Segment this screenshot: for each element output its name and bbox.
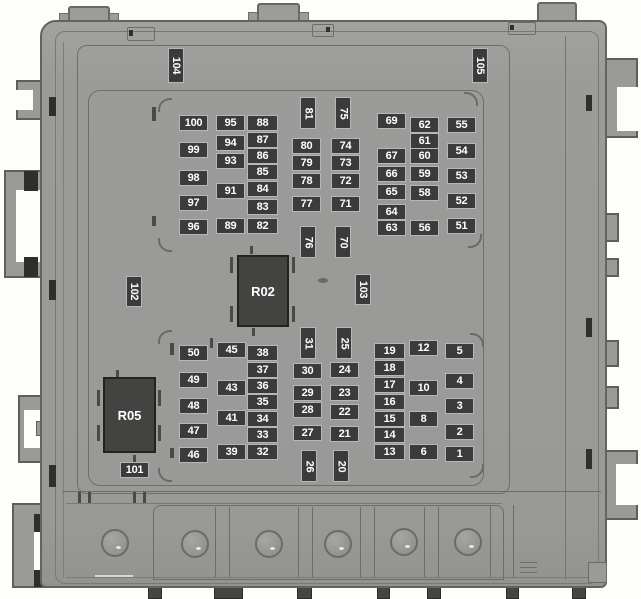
- fuse-label-38: 38: [247, 345, 278, 361]
- fuse-label-84: 84: [247, 181, 278, 197]
- relay-R05: R05: [103, 377, 156, 453]
- fuse-label-58: 58: [410, 185, 439, 201]
- relay-pin-tick: [133, 455, 136, 462]
- fuse-label-89: 89: [216, 218, 245, 234]
- fuse-label-31: 31: [300, 327, 316, 359]
- edge-tick: [586, 318, 592, 337]
- center-mark: [318, 278, 328, 283]
- relay-pin-tick: [116, 370, 119, 377]
- fuse-label-39: 39: [217, 444, 246, 460]
- edge-tick: [49, 97, 56, 116]
- fuse-label-103: 103: [355, 274, 371, 305]
- fuse-label-8: 8: [409, 411, 438, 427]
- fuse-label-25: 25: [336, 327, 352, 359]
- strip-second-line: [66, 503, 502, 504]
- fuse-label-105: 105: [472, 48, 488, 83]
- relay-pin-tick: [230, 257, 233, 273]
- fuse-label-86: 86: [247, 148, 278, 164]
- connector-hole: [454, 528, 482, 556]
- fuse-label-83: 83: [247, 199, 278, 215]
- connector-channel: [215, 507, 230, 577]
- ladder-mark: [520, 567, 537, 568]
- fuse-label-72: 72: [331, 173, 360, 189]
- fuse-label-5: 5: [445, 343, 474, 359]
- fuse-label-19: 19: [374, 343, 405, 359]
- fuse-label-55: 55: [447, 117, 476, 133]
- fuse-label-45: 45: [217, 342, 246, 358]
- fuse-label-95: 95: [216, 115, 245, 131]
- relay-pin-tick: [158, 425, 161, 441]
- fuse-label-10: 10: [409, 380, 438, 396]
- fuse-label-35: 35: [247, 394, 278, 410]
- fuse-label-71: 71: [331, 196, 360, 212]
- side-tab-right: [605, 258, 619, 277]
- corner-step: [588, 562, 607, 583]
- fuse-label-3: 3: [445, 398, 474, 414]
- connector-hole: [181, 530, 209, 558]
- fuse-label-85: 85: [247, 164, 278, 180]
- edge-tick: [49, 465, 56, 487]
- top-latch-pin: [326, 27, 330, 32]
- fuse-label-6: 6: [409, 444, 438, 460]
- fuse-label-22: 22: [330, 404, 359, 420]
- top-latch-pin: [510, 25, 514, 30]
- scratch-highlight: [95, 575, 133, 577]
- fuse-label-77: 77: [292, 196, 321, 212]
- connector-channel: [424, 507, 439, 577]
- fuse-label-28: 28: [293, 402, 322, 418]
- fuse-label-23: 23: [330, 385, 359, 401]
- fuse-label-67: 67: [377, 148, 406, 164]
- fuse-label-94: 94: [216, 135, 245, 151]
- strip-tick: [143, 492, 146, 503]
- fuse-label-51: 51: [447, 218, 476, 234]
- fuse-label-46: 46: [179, 447, 208, 463]
- fuse-label-12: 12: [409, 340, 438, 356]
- relay-pin-tick: [250, 246, 253, 254]
- fuse-label-30: 30: [293, 363, 322, 379]
- panel-tick: [210, 338, 213, 348]
- fuse-label-54: 54: [447, 143, 476, 159]
- fuse-label-36: 36: [247, 378, 278, 394]
- fuse-label-41: 41: [217, 410, 246, 426]
- fuse-label-62: 62: [410, 117, 439, 133]
- connector-hole: [324, 530, 352, 558]
- fuse-label-100: 100: [179, 115, 208, 131]
- connector-edge-line: [513, 505, 514, 577]
- fuse-label-70: 70: [335, 226, 351, 258]
- fuse-label-43: 43: [217, 380, 246, 396]
- panel-tick: [152, 216, 156, 226]
- fuse-label-75: 75: [335, 97, 351, 129]
- relay-pin-tick: [292, 257, 295, 273]
- fuse-label-59: 59: [410, 166, 439, 182]
- fuse-label-102: 102: [126, 276, 142, 307]
- fuse-label-63: 63: [377, 220, 406, 236]
- fuse-label-24: 24: [330, 362, 359, 378]
- fuse-label-78: 78: [292, 173, 321, 189]
- side-tab-right: [605, 386, 619, 409]
- fuse-label-49: 49: [179, 372, 208, 388]
- relay-pin-tick: [252, 328, 255, 336]
- fuse-label-73: 73: [331, 155, 360, 171]
- relay-pin-tick: [292, 306, 295, 322]
- fuse-label-91: 91: [216, 183, 245, 199]
- edge-tick: [586, 95, 592, 111]
- fuse-label-37: 37: [247, 362, 278, 378]
- fuse-label-20: 20: [333, 450, 349, 482]
- fuse-label-1: 1: [445, 446, 474, 462]
- mount-bracket-left-top-cutout: [15, 90, 33, 110]
- inner-vertical-left: [63, 42, 64, 578]
- panel-tick: [170, 448, 174, 458]
- fuse-label-98: 98: [179, 170, 208, 186]
- fuse-label-88: 88: [247, 115, 278, 131]
- connector-hole: [101, 529, 129, 557]
- fuse-label-50: 50: [179, 345, 208, 361]
- fuse-label-29: 29: [293, 385, 322, 401]
- inner-vertical-right: [565, 36, 566, 580]
- relay-pin-tick: [158, 390, 161, 406]
- fuse-label-26: 26: [301, 450, 317, 482]
- fuse-label-61: 61: [410, 133, 439, 149]
- relay-pin-tick: [97, 390, 100, 406]
- fuse-label-79: 79: [292, 155, 321, 171]
- top-latch: [312, 24, 334, 37]
- fuse-label-104: 104: [168, 48, 184, 83]
- fuse-label-21: 21: [330, 426, 359, 442]
- fuse-label-2: 2: [445, 424, 474, 440]
- fuse-label-80: 80: [292, 138, 321, 154]
- relay-R02-label: R02: [251, 284, 275, 299]
- strip-tick: [88, 492, 91, 503]
- fuse-label-64: 64: [377, 204, 406, 220]
- fuse-label-93: 93: [216, 153, 245, 169]
- top-latch-pin: [129, 30, 133, 36]
- fuse-label-17: 17: [374, 377, 405, 393]
- fuse-label-32: 32: [247, 444, 278, 460]
- fuse-label-69: 69: [377, 113, 406, 129]
- fuse-label-27: 27: [293, 425, 322, 441]
- strip-tick: [133, 492, 136, 503]
- fuse-label-82: 82: [247, 218, 278, 234]
- fuse-label-99: 99: [179, 142, 208, 158]
- mount-bracket-left-big-latch: [24, 171, 38, 191]
- fuse-label-60: 60: [410, 148, 439, 164]
- fuse-box-diagram: R02 R05 10099989796959493918988878685848…: [0, 0, 641, 599]
- strip-tick: [78, 492, 81, 503]
- fuse-label-33: 33: [247, 427, 278, 443]
- fuse-label-53: 53: [447, 168, 476, 184]
- ladder-mark: [520, 562, 537, 563]
- connector-hole: [255, 530, 283, 558]
- mount-bracket-left-big-latch: [24, 257, 38, 277]
- fuse-label-96: 96: [179, 219, 208, 235]
- fuse-label-13: 13: [374, 444, 405, 460]
- fuse-label-66: 66: [377, 166, 406, 182]
- panel-tick: [152, 107, 156, 121]
- fuse-label-4: 4: [445, 373, 474, 389]
- edge-tick: [586, 449, 592, 469]
- fuse-label-34: 34: [247, 411, 278, 427]
- fuse-label-47: 47: [179, 423, 208, 439]
- fuse-label-81: 81: [300, 97, 316, 129]
- fuse-label-97: 97: [179, 195, 208, 211]
- fuse-label-74: 74: [331, 138, 360, 154]
- fuse-label-101: 101: [120, 462, 149, 478]
- fuse-label-16: 16: [374, 394, 405, 410]
- fuse-label-18: 18: [374, 360, 405, 376]
- fuse-label-48: 48: [179, 398, 208, 414]
- fuse-label-15: 15: [374, 411, 405, 427]
- fuse-label-14: 14: [374, 427, 405, 443]
- mount-bracket-right-top-cutout: [617, 87, 639, 131]
- relay-pin-tick: [97, 425, 100, 441]
- edge-tick: [49, 280, 56, 300]
- relay-R05-label: R05: [118, 408, 142, 423]
- connector-hole: [390, 528, 418, 556]
- fuse-label-76: 76: [300, 226, 316, 258]
- panel-tick: [170, 343, 174, 355]
- connector-edge-line: [490, 505, 491, 577]
- fuse-label-87: 87: [247, 132, 278, 148]
- connector-channel: [298, 507, 313, 577]
- fuse-label-56: 56: [410, 220, 439, 236]
- relay-R02: R02: [237, 255, 289, 327]
- ladder-mark: [520, 572, 537, 573]
- fuse-label-52: 52: [447, 193, 476, 209]
- side-tab-right: [605, 213, 619, 242]
- fuse-label-65: 65: [377, 184, 406, 200]
- relay-pin-tick: [230, 306, 233, 322]
- mount-bracket-right-bottom-cutout: [616, 464, 639, 505]
- side-tab-right: [605, 340, 619, 367]
- connector-channel: [360, 507, 375, 577]
